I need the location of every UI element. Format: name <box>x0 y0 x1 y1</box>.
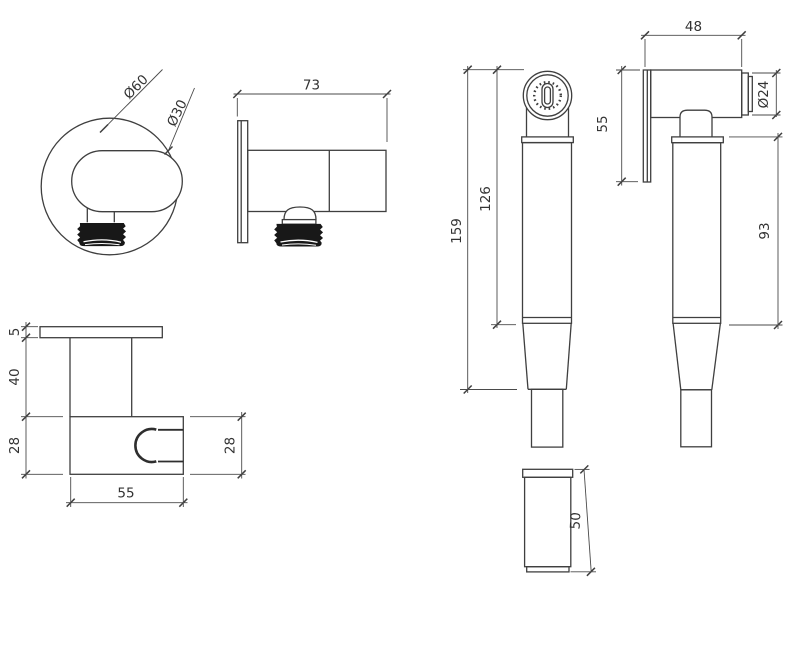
threaded-connector-side <box>275 224 323 246</box>
dim-handle-length-label: 93 <box>757 222 773 239</box>
sleeve-view: 50 <box>523 465 596 575</box>
bracket-capsule <box>72 151 183 212</box>
dim-stem-height: 40 <box>7 368 23 385</box>
dim-sleeve-height-label: 50 <box>568 512 585 530</box>
handle-body-front <box>523 143 572 324</box>
spray-head-outer <box>523 71 571 119</box>
dim-sleeve-height: 50 <box>568 465 596 575</box>
bracket-body <box>248 150 386 211</box>
dim-cap-diameter-label: Ø24 <box>756 81 772 109</box>
dim-body-width: 55 <box>117 486 134 502</box>
nozzle-ring <box>534 82 561 109</box>
dim-backplate-height: 55 <box>595 66 640 186</box>
dim-head-length: 48 <box>641 19 746 67</box>
dim-backplate-height-label: 55 <box>595 115 611 132</box>
connector-dome <box>284 207 316 220</box>
sleeve-base <box>527 567 569 572</box>
dim-total-length: 159 <box>449 218 465 244</box>
hose-stub-side <box>681 390 712 447</box>
holder-view: 5 40 28 28 55 <box>7 322 246 507</box>
handset-front-view: 159 126 <box>449 66 573 447</box>
leader-inner-diameter: Ø30 <box>164 88 194 155</box>
dim-body-height-right: 28 <box>223 437 239 454</box>
dim-head-length-label: 48 <box>685 19 702 35</box>
holder-block <box>70 417 183 475</box>
hose-stub-front <box>532 389 563 447</box>
dim-width-label: 73 <box>303 78 320 94</box>
dim-holder-right: 28 <box>190 412 246 479</box>
wall-plate <box>238 121 248 243</box>
handle-collar-side <box>672 137 724 143</box>
dim-outer-diameter: Ø60 <box>121 72 152 103</box>
sleeve-top-rim <box>523 469 573 477</box>
threaded-connector <box>78 223 126 246</box>
drawing-canvas: Ø60 Ø30 73 <box>0 0 800 659</box>
holder-plate <box>40 327 162 338</box>
handle-body-side <box>673 143 721 324</box>
head-cap-end <box>748 77 752 112</box>
dim-bracket-width: 73 <box>233 78 391 143</box>
dim-body-length: 126 <box>478 186 494 212</box>
dim-handset-front: 159 126 <box>449 66 524 394</box>
dim-inner-diameter: Ø30 <box>164 97 191 129</box>
handset-side-view: 48 55 Ø24 <box>595 19 783 447</box>
dim-holder-bottom: 55 <box>66 477 188 507</box>
technical-drawing: Ø60 Ø30 73 <box>0 0 800 659</box>
bracket-front-view: Ø60 Ø30 <box>41 70 194 255</box>
sleeve-body <box>525 477 571 566</box>
dim-handle-length: 93 <box>729 133 783 329</box>
dim-holder-left: 5 40 28 <box>7 322 63 479</box>
dim-plate-thickness: 5 <box>7 328 23 337</box>
neck-dome <box>680 110 712 137</box>
holder-clip <box>135 429 156 462</box>
spray-slot-inner <box>545 87 551 104</box>
handle-collar-front <box>522 137 574 143</box>
head-cap-ring <box>742 73 749 115</box>
bracket-side-view: 73 <box>233 78 391 247</box>
dim-body-height-left: 28 <box>7 437 23 454</box>
dim-cap-diameter: Ø24 <box>752 69 781 119</box>
leader-outer-diameter: Ø60 <box>100 70 163 133</box>
